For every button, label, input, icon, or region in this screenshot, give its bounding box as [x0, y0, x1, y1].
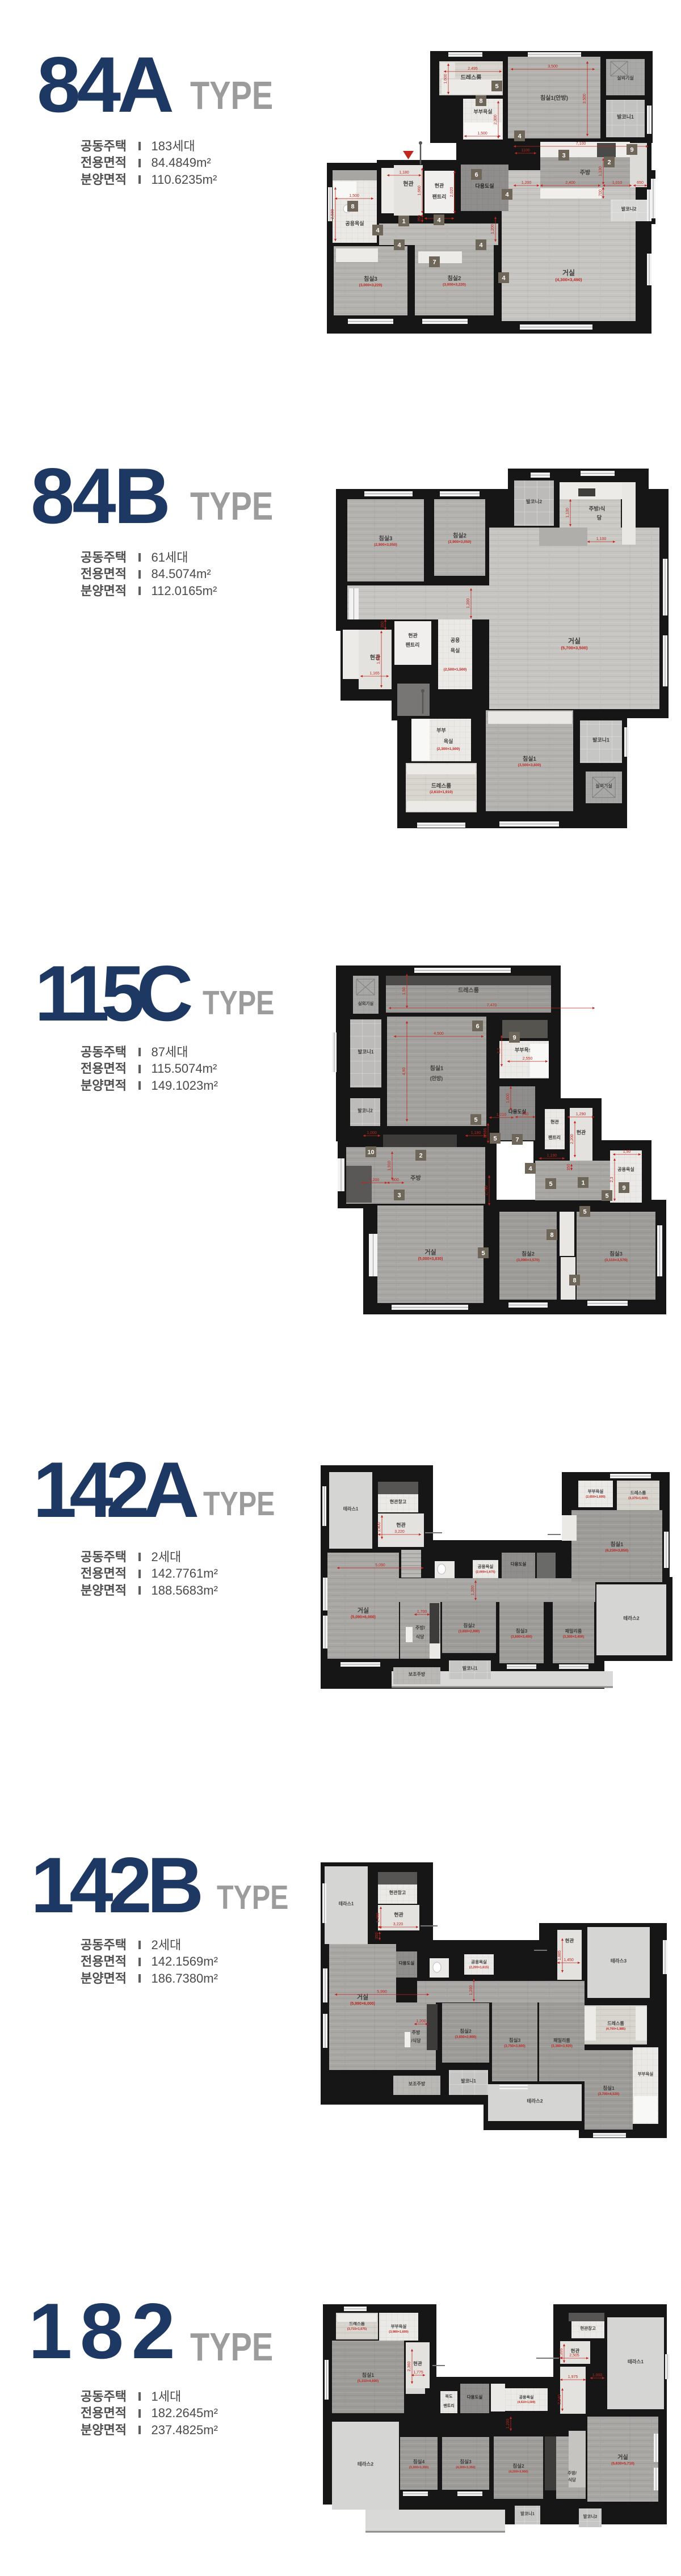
svg-text:1,600: 1,600	[444, 74, 448, 84]
svg-text:1,200: 1,200	[469, 1985, 473, 1996]
svg-text:욕실: 욕실	[451, 647, 460, 654]
svg-text:(3,650×2,900): (3,650×2,900)	[455, 2036, 477, 2039]
svg-text:침실3: 침실3	[516, 1628, 528, 1634]
svg-text:1,000: 1,000	[367, 1131, 377, 1135]
svg-text:4: 4	[437, 217, 441, 224]
svg-text:당: 당	[597, 515, 602, 521]
svg-text:침실1: 침실1	[523, 755, 536, 762]
svg-text:1,200: 1,200	[466, 598, 470, 609]
svg-text:4: 4	[479, 242, 483, 249]
svg-text:5: 5	[474, 1117, 477, 1124]
svg-text:(5,090×6,000): (5,090×6,000)	[351, 1616, 376, 1620]
svg-text:8: 8	[573, 1278, 576, 1284]
svg-text:(3,300×3,400): (3,300×3,400)	[563, 1635, 585, 1639]
svg-text:현관: 현관	[435, 183, 444, 189]
svg-text:침실3: 침실3	[364, 275, 377, 283]
svg-text:3,500: 3,500	[583, 94, 587, 104]
svg-text:공용욕실: 공용욕실	[519, 2394, 534, 2400]
svg-text:1,180: 1,180	[399, 171, 409, 175]
svg-text:(5,310×4,600): (5,310×4,600)	[358, 2380, 379, 2383]
svg-text:다용도실: 다용도실	[399, 1960, 415, 1966]
svg-text:5,090: 5,090	[375, 1563, 385, 1567]
svg-text:3,220: 3,220	[393, 1922, 403, 1926]
svg-text:부부: 부부	[436, 728, 446, 733]
svg-text:4: 4	[518, 133, 522, 140]
svg-text:2,495: 2,495	[468, 67, 478, 71]
svg-text:(3,980×1,600): (3,980×1,600)	[389, 2330, 409, 2334]
svg-text:현관: 현관	[394, 1912, 403, 1918]
svg-text:(2,900×3,050): (2,900×3,050)	[448, 540, 472, 544]
svg-text:10: 10	[367, 1149, 374, 1156]
svg-text:1,130: 1,130	[566, 508, 570, 518]
svg-text:4: 4	[376, 227, 380, 234]
svg-text:침실2: 침실2	[448, 275, 461, 282]
svg-text:2,200: 2,200	[570, 1134, 574, 1144]
svg-text:부부욕실: 부부욕실	[588, 1489, 604, 1494]
svg-text:350: 350	[418, 215, 422, 222]
svg-text:1,790: 1,790	[485, 1186, 489, 1196]
svg-text:실외기실: 실외기실	[358, 1001, 374, 1006]
svg-text:현관: 현관	[577, 1129, 586, 1136]
svg-text:1,490: 1,490	[376, 1913, 380, 1923]
svg-text:공용욕실: 공용욕실	[471, 1959, 487, 1964]
svg-text:1,50: 1,50	[623, 1150, 631, 1154]
svg-text:4: 4	[397, 242, 401, 249]
svg-text:1,100: 1,100	[596, 537, 607, 541]
svg-text:(3,500×3,600): (3,500×3,600)	[518, 764, 541, 768]
svg-text:(안방): (안방)	[430, 1075, 443, 1081]
svg-text:4: 4	[505, 192, 509, 199]
svg-text:발코니2: 발코니2	[621, 206, 637, 212]
svg-text:1,775: 1,775	[413, 2371, 423, 2375]
svg-text:1,290: 1,290	[576, 1112, 586, 1116]
svg-text:패밀리룸: 패밀리룸	[553, 2038, 570, 2043]
svg-text:거실: 거실	[562, 268, 575, 277]
svg-text:1,165: 1,165	[369, 672, 380, 676]
svg-text:침실1: 침실1	[430, 1065, 444, 1072]
svg-text:(5,700×3,500): (5,700×3,500)	[561, 646, 588, 651]
svg-text:테라스3: 테라스3	[611, 1958, 627, 1964]
svg-text:1,205: 1,205	[560, 2349, 564, 2359]
svg-text:테라스2: 테라스2	[623, 1616, 639, 1621]
svg-text:1: 1	[402, 218, 405, 225]
svg-text:침실1(안방): 침실1(안방)	[540, 94, 568, 102]
svg-text:(3,700×4,520): (3,700×4,520)	[598, 2093, 620, 2096]
svg-text:드레스룸: 드레스룸	[630, 1490, 646, 1495]
svg-text:3: 3	[397, 1192, 401, 1199]
svg-text:5: 5	[549, 1181, 552, 1188]
svg-text:주방: 주방	[580, 169, 591, 176]
svg-text:2,300: 2,300	[494, 115, 498, 125]
svg-text:6: 6	[474, 172, 478, 179]
svg-text:테라스1: 테라스1	[339, 1901, 354, 1907]
svg-text:드레스룸: 드레스룸	[431, 783, 451, 790]
svg-text:주방/식: 주방/식	[589, 505, 606, 512]
svg-text:1,660: 1,660	[418, 185, 422, 196]
svg-text:1,450: 1,450	[564, 1958, 574, 1962]
svg-text:발코니2: 발코니2	[583, 2514, 598, 2519]
svg-text:공용욕실: 공용욕실	[478, 1563, 494, 1569]
svg-text:3: 3	[562, 153, 565, 159]
svg-text:(5,630×5,710): (5,630×5,710)	[611, 2462, 634, 2466]
svg-text:(3,715×1,675): (3,715×1,675)	[347, 2328, 367, 2331]
svg-text:거실: 거실	[617, 2453, 628, 2461]
svg-text:침실3: 침실3	[509, 2038, 521, 2043]
svg-text:현관: 현관	[550, 1119, 559, 1125]
svg-text:현관창고: 현관창고	[390, 1499, 407, 1504]
svg-text:4: 4	[528, 1166, 532, 1173]
svg-text:1,50: 1,50	[402, 987, 406, 995]
svg-text:(3,090×3,570): (3,090×3,570)	[516, 1258, 540, 1262]
svg-text:800: 800	[392, 1178, 399, 1182]
svg-text:현관: 현관	[571, 2348, 580, 2354]
svg-text:보조주방: 보조주방	[409, 2081, 426, 2086]
svg-text:8: 8	[550, 1232, 553, 1239]
svg-text:3,220: 3,220	[394, 1530, 405, 1534]
svg-text:5: 5	[605, 1193, 608, 1200]
svg-text:7,100: 7,100	[576, 142, 586, 146]
svg-text:침실4: 침실4	[413, 2459, 425, 2465]
svg-text:700: 700	[599, 189, 603, 196]
svg-text:테라스2: 테라스2	[527, 2098, 543, 2104]
svg-text:발코니1: 발코니1	[358, 1049, 373, 1055]
svg-text:(5,990×6,000): (5,990×6,000)	[350, 2002, 375, 2006]
svg-text:1,200: 1,200	[522, 181, 532, 185]
svg-text:팬트리: 팬트리	[443, 2403, 454, 2408]
svg-text:주방/: 주방/	[567, 2470, 577, 2476]
svg-text:발코니1: 발코니1	[592, 737, 609, 743]
svg-text:침실2: 침실2	[512, 2463, 524, 2469]
svg-text:거실: 거실	[358, 1607, 369, 1614]
svg-text:발코니1: 발코니1	[520, 2511, 535, 2516]
svg-text:/식당: /식당	[411, 2038, 422, 2043]
svg-text:부부욕실: 부부욕실	[638, 2071, 654, 2077]
svg-text:1,200: 1,200	[369, 1178, 380, 1182]
svg-text:현관창고: 현관창고	[580, 2325, 596, 2331]
svg-text:650: 650	[637, 181, 644, 185]
svg-text:9: 9	[512, 1035, 516, 1042]
svg-text:1,500: 1,500	[477, 132, 487, 136]
svg-text:다용도실: 다용도실	[511, 1561, 527, 1567]
svg-text:(2,500×1,500): (2,500×1,500)	[444, 668, 467, 672]
svg-text:1,885: 1,885	[558, 1950, 562, 1961]
svg-text:(3,000×3,220): (3,000×3,220)	[359, 284, 382, 288]
svg-text:5: 5	[583, 1209, 586, 1216]
svg-text:발코니1: 발코니1	[617, 113, 634, 120]
svg-text:2,550: 2,550	[523, 1057, 533, 1061]
svg-text:8: 8	[351, 204, 354, 210]
svg-text:현관: 현관	[413, 2361, 422, 2367]
svg-text:테라스2: 테라스2	[358, 2461, 373, 2467]
svg-text:350: 350	[381, 621, 385, 628]
svg-text:보조주방: 보조주방	[409, 1671, 426, 1677]
svg-text:(3,375×1,600): (3,375×1,600)	[628, 1497, 648, 1500]
svg-text:현관: 현관	[565, 1938, 574, 1943]
svg-text:침실3: 침실3	[460, 2459, 472, 2465]
svg-text:현관: 현관	[396, 1522, 406, 1528]
svg-text:패밀리룸: 패밀리룸	[565, 1628, 582, 1634]
svg-text:7: 7	[432, 259, 436, 266]
svg-text:발코니1: 발코니1	[463, 1666, 478, 1671]
svg-text:공용욕실: 공용욕실	[345, 220, 364, 226]
svg-text:(3,750×3,800): (3,750×3,800)	[504, 2045, 526, 2048]
svg-text:부부욕실: 부부욕실	[391, 2324, 407, 2329]
svg-text:9: 9	[622, 1185, 625, 1192]
svg-text:2,505: 2,505	[569, 2354, 579, 2358]
svg-text:팬트리: 팬트리	[548, 1135, 561, 1140]
svg-text:4,500: 4,500	[434, 1032, 444, 1036]
svg-text:2: 2	[607, 159, 611, 166]
svg-text:1,210: 1,210	[497, 1113, 507, 1117]
svg-text:거실: 거실	[424, 1248, 436, 1256]
svg-text:940: 940	[522, 1112, 529, 1116]
svg-text:1,200: 1,200	[506, 2419, 510, 2429]
svg-text:거실: 거실	[568, 636, 581, 645]
svg-text:침실3: 침실3	[609, 1251, 623, 1258]
svg-text:현관: 현관	[408, 633, 418, 639]
svg-text:1,130: 1,130	[599, 166, 603, 176]
svg-text:1,200: 1,200	[471, 1586, 475, 1596]
svg-text:7: 7	[515, 1137, 519, 1144]
svg-text:(3,110×3,570): (3,110×3,570)	[604, 1258, 627, 1262]
svg-text:(2,610×1,910): (2,610×1,910)	[430, 790, 453, 794]
svg-text:주방: 주방	[412, 2030, 421, 2035]
svg-text:(3,600×3,400): (3,600×3,400)	[511, 1635, 532, 1639]
svg-text:(2,000×1,675): (2,000×1,675)	[476, 1571, 495, 1574]
svg-text:5: 5	[493, 1136, 497, 1142]
svg-text:부부욕실: 부부욕실	[473, 108, 492, 115]
svg-text:발코니1: 발코니1	[461, 2078, 476, 2084]
svg-text:1,000: 1,000	[592, 2373, 603, 2377]
svg-text:발코니2: 발코니2	[358, 1108, 373, 1114]
svg-text:5: 5	[481, 1250, 485, 1257]
svg-text:공용욕실: 공용욕실	[617, 1166, 634, 1172]
svg-text:350: 350	[375, 1933, 379, 1940]
svg-text:식당: 식당	[416, 1634, 424, 1639]
svg-text:1,010: 1,010	[612, 181, 623, 185]
svg-text:1100: 1100	[521, 149, 529, 153]
svg-text:침실1: 침실1	[362, 2372, 375, 2378]
svg-text:드레스룸: 드레스룸	[458, 986, 479, 994]
svg-text:2,140: 2,140	[558, 2394, 562, 2405]
svg-text:(3,300×3,350): (3,300×3,350)	[409, 2466, 429, 2469]
svg-text:(2,650×1,600): (2,650×1,600)	[586, 1495, 606, 1499]
svg-text:4: 4	[502, 275, 506, 282]
svg-text:(2,200×1,615): (2,200×1,615)	[469, 1966, 489, 1970]
svg-text:(2,300×1,500): (2,300×1,500)	[437, 747, 460, 751]
svg-text:(4,300×3,490): (4,300×3,490)	[556, 277, 582, 283]
svg-text:주방/: 주방/	[415, 1625, 426, 1630]
svg-text:1,700: 1,700	[417, 1610, 427, 1614]
svg-text:9: 9	[630, 147, 633, 154]
svg-text:침실2: 침실2	[453, 532, 466, 539]
svg-text:드레스룸: 드레스룸	[607, 2021, 624, 2026]
svg-text:(4,200×3,900): (4,200×3,900)	[508, 2470, 528, 2474]
svg-text:1,595: 1,595	[484, 1128, 487, 1139]
svg-text:2,2: 2,2	[497, 1048, 501, 1054]
svg-text:복도: 복도	[445, 2394, 453, 2399]
svg-text:(4,510×1,500): (4,510×1,500)	[518, 2401, 536, 2404]
svg-text:테라스1: 테라스1	[628, 2359, 644, 2364]
svg-text:1,910: 1,910	[388, 1161, 392, 1171]
svg-text:침실1: 침실1	[611, 1541, 624, 1548]
svg-text:8: 8	[479, 98, 482, 105]
svg-text:(3,360×3,920): (3,360×3,920)	[551, 2045, 573, 2048]
svg-text:(4,700×1,985): (4,700×1,985)	[606, 2027, 626, 2031]
svg-text:침실2: 침실2	[463, 1623, 475, 1629]
svg-text:(6,230×3,850): (6,230×3,850)	[606, 1549, 629, 1553]
svg-text:(3,650×2,900): (3,650×2,900)	[459, 1630, 480, 1634]
svg-text:5,990: 5,990	[377, 1990, 387, 1994]
svg-text:2,020: 2,020	[450, 187, 454, 197]
svg-text:2: 2	[419, 1153, 422, 1160]
svg-text:2,400: 2,400	[565, 181, 575, 185]
svg-text:5: 5	[495, 83, 498, 90]
svg-text:침실2: 침실2	[460, 2029, 472, 2034]
svg-text:현관창고: 현관창고	[389, 1890, 406, 1895]
svg-text:1,400: 1,400	[377, 1522, 381, 1532]
svg-text:1,190: 1,190	[547, 1154, 557, 1158]
svg-text:팬트리: 팬트리	[432, 193, 447, 200]
svg-text:침실1: 침실1	[603, 2085, 615, 2091]
svg-text:(3,000×3,220): (3,000×3,220)	[443, 283, 466, 287]
svg-text:2,360: 2,360	[407, 2362, 411, 2372]
svg-text:1,180: 1,180	[471, 1131, 481, 1135]
svg-text:1,200: 1,200	[491, 224, 495, 234]
svg-text:2,3: 2,3	[610, 1177, 614, 1183]
svg-text:팬트리: 팬트리	[406, 642, 420, 648]
svg-text:침실3: 침실3	[379, 535, 393, 542]
svg-text:(4,200×3,350): (4,200×3,350)	[456, 2466, 476, 2469]
svg-text:공용: 공용	[451, 638, 460, 643]
svg-text:발코니2: 발코니2	[526, 499, 542, 504]
svg-text:욕실: 욕실	[444, 738, 453, 744]
svg-text:6: 6	[476, 1023, 479, 1030]
svg-text:1: 1	[581, 1180, 585, 1187]
svg-text:350: 350	[567, 1164, 571, 1171]
svg-text:(2,900×3,050): (2,900×3,050)	[374, 543, 397, 547]
svg-text:식당: 식당	[568, 2477, 576, 2482]
svg-text:테라스1: 테라스1	[343, 1506, 359, 1512]
svg-text:7,470: 7,470	[487, 1004, 497, 1007]
svg-text:침실2: 침실2	[522, 1251, 535, 1258]
svg-text:1,500: 1,500	[349, 194, 359, 198]
svg-text:3,500: 3,500	[548, 65, 558, 69]
svg-text:1,975: 1,975	[568, 2375, 578, 2379]
svg-text:4,90: 4,90	[402, 1068, 406, 1076]
svg-text:(5,000×3,830): (5,000×3,830)	[418, 1257, 443, 1261]
svg-text:2,500: 2,500	[331, 209, 335, 220]
svg-text:1,600: 1,600	[506, 1093, 510, 1103]
svg-text:1,960: 1,960	[377, 654, 381, 664]
svg-text:주방: 주방	[410, 1174, 421, 1182]
svg-text:1,200: 1,200	[416, 2020, 426, 2023]
svg-text:다용도실: 다용도실	[475, 183, 494, 189]
svg-text:거실: 거실	[357, 1993, 368, 2001]
svg-text:현관: 현관	[403, 180, 414, 188]
svg-text:다용도실: 다용도실	[467, 2394, 483, 2400]
